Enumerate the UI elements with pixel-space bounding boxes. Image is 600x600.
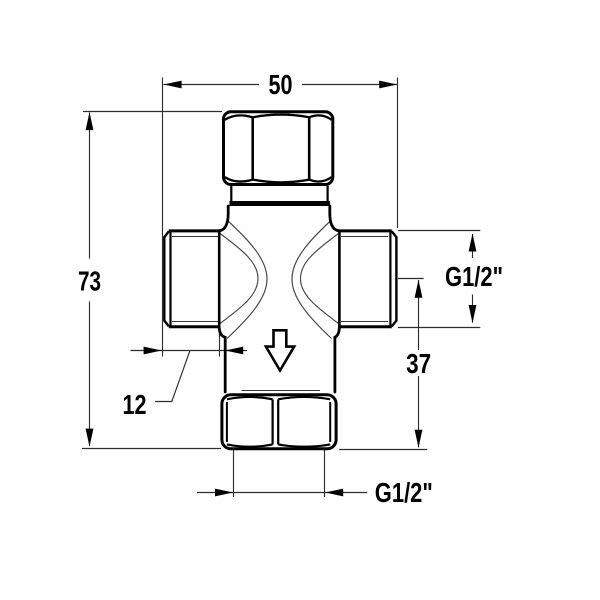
svg-text:G1/2": G1/2" (375, 477, 433, 508)
svg-text:12: 12 (123, 389, 147, 420)
svg-text:37: 37 (406, 348, 431, 379)
svg-text:73: 73 (78, 266, 101, 297)
svg-text:50: 50 (269, 69, 293, 100)
svg-text:G1/2": G1/2" (445, 261, 503, 292)
